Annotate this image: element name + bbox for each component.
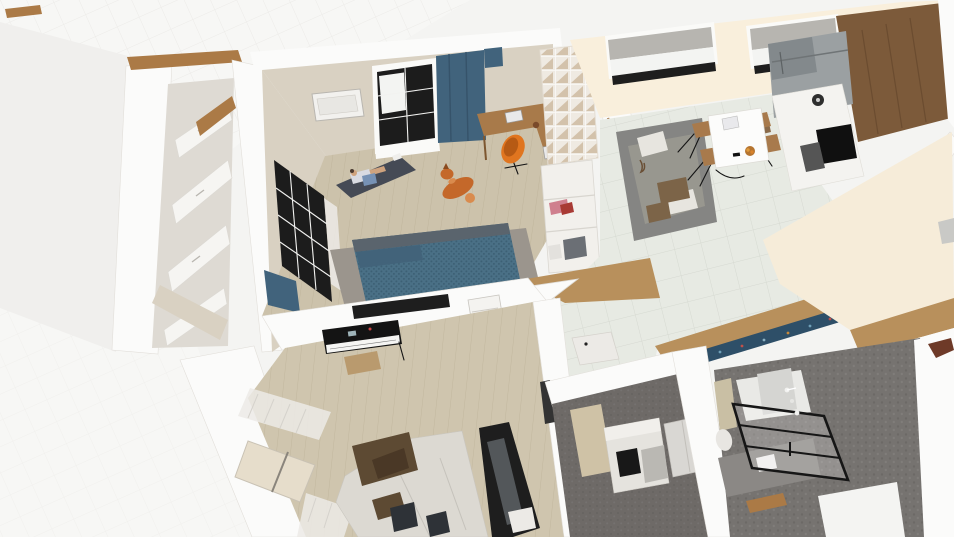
music-sofa[interactable]	[336, 431, 488, 537]
floorplan-viewport[interactable]	[0, 0, 954, 537]
black-pillow	[616, 448, 641, 477]
dining-table[interactable]	[708, 108, 769, 168]
bedroom-window[interactable]	[372, 58, 440, 159]
exterior-wall-plane	[0, 22, 128, 352]
mug[interactable]	[533, 122, 539, 128]
corridor-wardrobe[interactable]	[541, 160, 600, 273]
shelf-item-gray	[563, 236, 587, 260]
bed-2[interactable]	[604, 418, 669, 493]
floorplan-render	[0, 0, 954, 537]
door-handle	[584, 342, 587, 345]
fruit-bowl	[745, 146, 755, 156]
shelf-item-box	[548, 244, 562, 260]
ceiling-light[interactable]	[312, 89, 364, 121]
flat-door-panel[interactable]	[572, 332, 619, 365]
